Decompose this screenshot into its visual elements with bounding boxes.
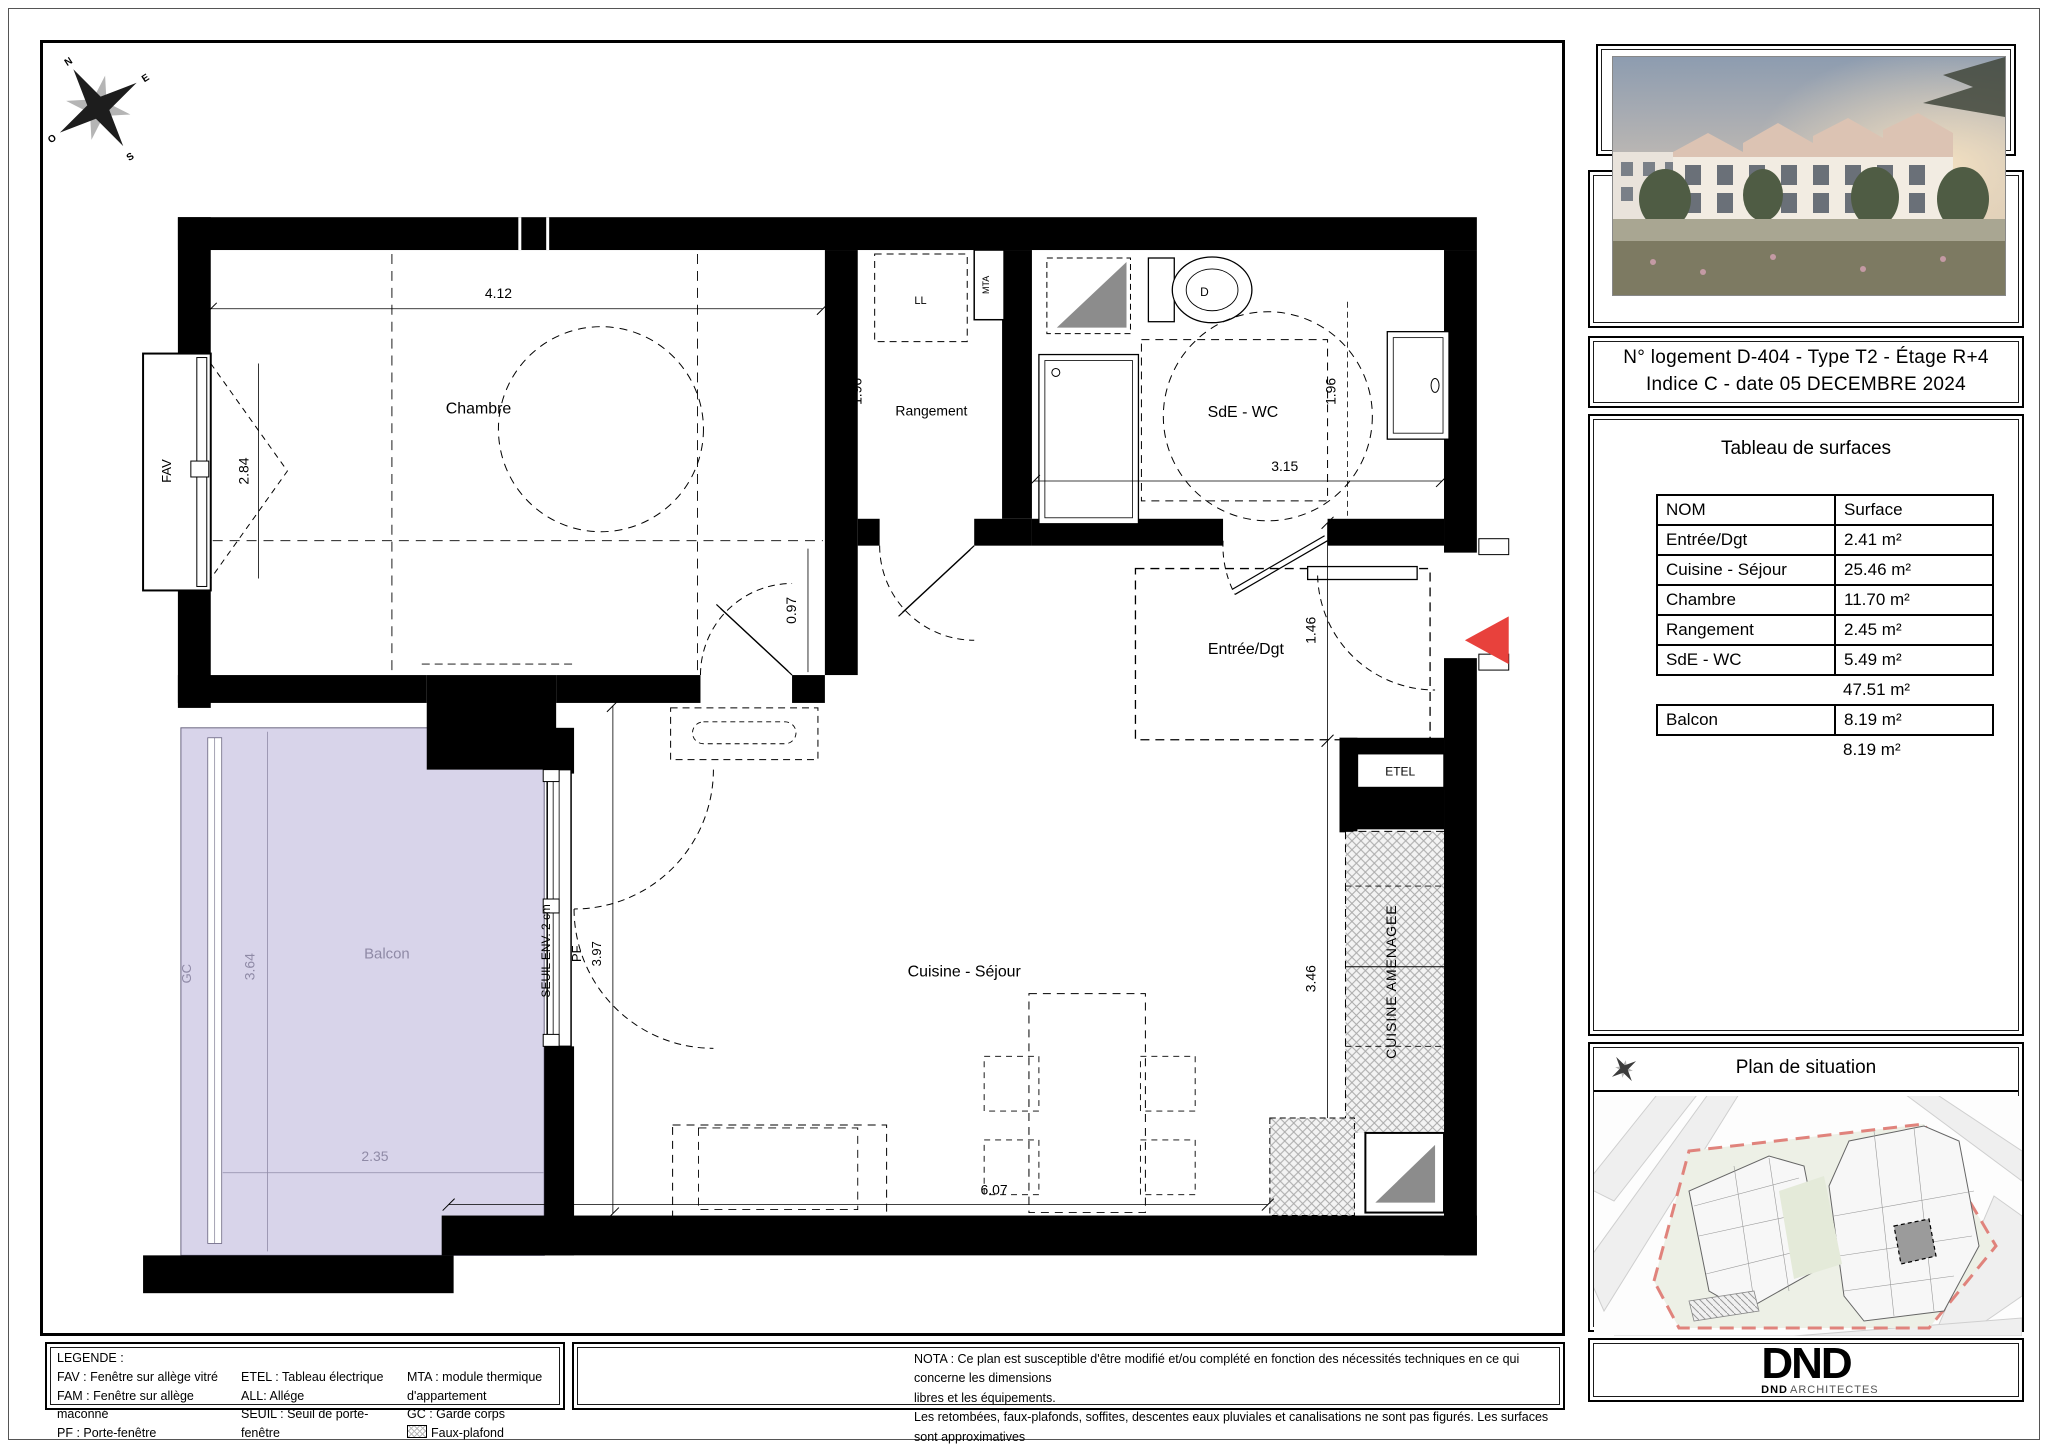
compass-s: S — [125, 151, 137, 164]
sde-depth-dim: 1.96 — [1323, 378, 1339, 405]
dnd-logo-icon: DND DND ARCHITECTES — [1716, 1342, 1896, 1398]
sejour-depth-dim: 3.97 — [589, 941, 604, 966]
architect-logo-box: DND DND ARCHITECTES — [1588, 1338, 2024, 1402]
row-nom: Entrée/Dgt — [1657, 525, 1835, 555]
wall-seam — [546, 217, 549, 250]
unit-title-box: N° logement D-404 - Type T2 - Étage R+4 … — [1588, 336, 2024, 408]
table-row: Entrée/Dgt 2.41 m² — [1657, 525, 1993, 555]
legend-item: SEUIL : Seuil de porte-fenêtre — [241, 1405, 401, 1443]
situation-map — [1594, 1096, 2018, 1341]
nota-line: NOTA : Ce plan est susceptible d'être mo… — [914, 1350, 1555, 1389]
vanity — [1387, 332, 1449, 440]
sde-width-dim: 3.15 — [1271, 458, 1298, 474]
balcon-total-row: 8.19 m² — [1657, 735, 1993, 764]
legend-item: FAV : Fenêtre sur allège vitré — [57, 1368, 235, 1387]
logo-sub-bold: DND — [1761, 1384, 1788, 1396]
nota-line: Les retombées, faux-plafonds, soffites, … — [914, 1408, 1555, 1447]
compass-n: N — [63, 56, 75, 69]
row-nom: Chambre — [1657, 585, 1835, 615]
building-photo — [1612, 56, 2006, 296]
guardrail-label: GC — [179, 964, 194, 983]
total-surface: 47.51 m² — [1835, 675, 1993, 705]
col-header-nom: NOM — [1657, 495, 1835, 525]
balcon-total-surface: 8.19 m² — [1835, 735, 1993, 764]
total-row: 47.51 m² — [1657, 675, 1993, 705]
logo-mark: DND — [1761, 1342, 1851, 1388]
legend-item: Faux-plafond — [407, 1424, 553, 1443]
nota-box: NOTA : Ce plan est susceptible d'être mo… — [572, 1342, 1565, 1410]
chair — [1140, 1056, 1195, 1111]
compass-o: O — [46, 132, 59, 146]
surfaces-table: NOM Surface Entrée/Dgt 2.41 m² Cuisine -… — [1656, 494, 1994, 764]
col-header-surface: Surface — [1835, 495, 1993, 525]
row-nom: Cuisine - Séjour — [1657, 555, 1835, 585]
row-surface: 25.46 m² — [1835, 555, 1993, 585]
legend-item: MTA : module thermique d'appartement — [407, 1368, 553, 1406]
shower-tray — [1039, 355, 1139, 524]
faux-plafond-symbol-icon — [407, 1425, 427, 1438]
compass-rose: N E S O — [43, 43, 183, 194]
rangement-door — [880, 546, 975, 641]
legend-item: ETEL : Tableau électrique — [241, 1368, 401, 1387]
legend-box: LEGENDE : FAV : Fenêtre sur allège vitré… — [45, 1342, 565, 1410]
balcony-label: Balcon — [364, 946, 410, 963]
legend-item-label: Faux-plafond — [431, 1426, 504, 1440]
compass-e: E — [140, 72, 152, 85]
surfaces-panel: Tableau de surfaces NOM Surface Entrée/D… — [1588, 414, 2024, 1036]
balcony-width-dim: 2.35 — [361, 1148, 388, 1164]
entry-door-leaf — [1308, 567, 1417, 580]
table-row: Chambre 11.70 m² — [1657, 585, 1993, 615]
fav-label: FAV — [159, 459, 174, 483]
toilet-cistern — [1148, 258, 1174, 322]
row-surface: 5.49 m² — [1835, 645, 1993, 675]
legend-item: PF : Porte-fenêtre — [57, 1424, 235, 1443]
unit-title-line1: N° logement D-404 - Type T2 - Étage R+4 — [1623, 345, 1989, 372]
entree-label: Entrée/Dgt — [1208, 641, 1285, 658]
row-surface: 2.41 m² — [1835, 525, 1993, 555]
legend-item: GC : Garde corps — [407, 1405, 553, 1424]
row-surface: 8.19 m² — [1835, 705, 1993, 735]
chair — [1140, 1140, 1195, 1195]
rangement-label: Rangement — [895, 402, 967, 418]
surfaces-title: Tableau de surfaces — [1590, 438, 2022, 460]
dining-table — [1029, 994, 1145, 1213]
pf-french-door — [543, 770, 713, 1049]
kitchen-label: CUISINE AMENAGEE — [1383, 904, 1399, 1058]
sejour-width-dim: 6.07 — [981, 1182, 1008, 1198]
seuil-label: SEUIL ENV. 2 cm — [539, 904, 553, 997]
door-width-dim: 0.97 — [783, 597, 799, 624]
washing-machine-label: LL — [914, 295, 926, 307]
pf-label: PF — [569, 945, 584, 962]
sejour-label: Cuisine - Séjour — [908, 964, 1022, 981]
chambre-door — [700, 583, 792, 675]
table-row-balcon: Balcon 8.19 m² — [1657, 705, 1993, 735]
row-surface: 11.70 m² — [1835, 585, 1993, 615]
duct-triangle — [1057, 262, 1127, 328]
etel-label: ETEL — [1385, 765, 1415, 779]
turning-circle — [498, 327, 703, 532]
cuisine-depth-dim: 3.46 — [1303, 965, 1319, 992]
nota-line: libres et les équipements. — [914, 1389, 1555, 1408]
sde-wc-room: D SdE - WC 1.96 3.15 — [1028, 257, 1449, 524]
row-nom: Balcon — [1657, 705, 1835, 735]
entree-depth-dim: 1.46 — [1303, 616, 1319, 643]
legend-title: LEGENDE : — [57, 1349, 553, 1368]
row-nom: Rangement — [1657, 615, 1835, 645]
floor-plan: N E S O GC 3.64 Balcon 2.35 — [43, 43, 1562, 1333]
sde-door — [1223, 536, 1328, 595]
mta-label: MTA — [981, 276, 991, 294]
wall-seam — [518, 217, 521, 250]
legend-item: FAM : Fenêtre sur allège maconné — [57, 1387, 235, 1425]
row-surface: 2.45 m² — [1835, 615, 1993, 645]
table-row: Rangement 2.45 m² — [1657, 615, 1993, 645]
chambre-room: 4.12 Chambre — [205, 254, 829, 672]
balcony-depth-dim: 3.64 — [242, 953, 258, 980]
balcony: GC 3.64 Balcon 2.35 — [179, 728, 544, 1256]
unit-title-line2: Indice C - date 05 DECEMBRE 2024 — [1646, 372, 1966, 399]
table-row: SdE - WC 5.49 m² — [1657, 645, 1993, 675]
chambre-height-dim: 2.84 — [236, 457, 252, 484]
logo-sub-light: ARCHITECTES — [1790, 1384, 1879, 1396]
sde-wc-label: SdE - WC — [1208, 404, 1279, 421]
toilet-mark: D — [1200, 285, 1209, 299]
floor-plan-frame: N E S O GC 3.64 Balcon 2.35 — [40, 40, 1565, 1336]
toilet-bowl — [1172, 257, 1252, 323]
row-nom: SdE - WC — [1657, 645, 1835, 675]
situation-title: Plan de situation — [1594, 1057, 2018, 1079]
legend-item: ALL: Allége — [241, 1387, 401, 1406]
situation-panel: Plan de situation — [1588, 1042, 2024, 1332]
chair — [984, 1056, 1039, 1111]
highlighted-unit — [1894, 1219, 1936, 1264]
chambre-label: Chambre — [446, 400, 512, 417]
chambre-width-dim: 4.12 — [485, 285, 512, 301]
fitted-kitchen: CUISINE AMENAGEE — [1270, 831, 1444, 1215]
table-row: Cuisine - Séjour 25.46 m² — [1657, 555, 1993, 585]
rangement-depth-dim: 1.96 — [849, 378, 865, 405]
rangement-room: LL 1.96 Rangement MTA — [849, 250, 1004, 418]
